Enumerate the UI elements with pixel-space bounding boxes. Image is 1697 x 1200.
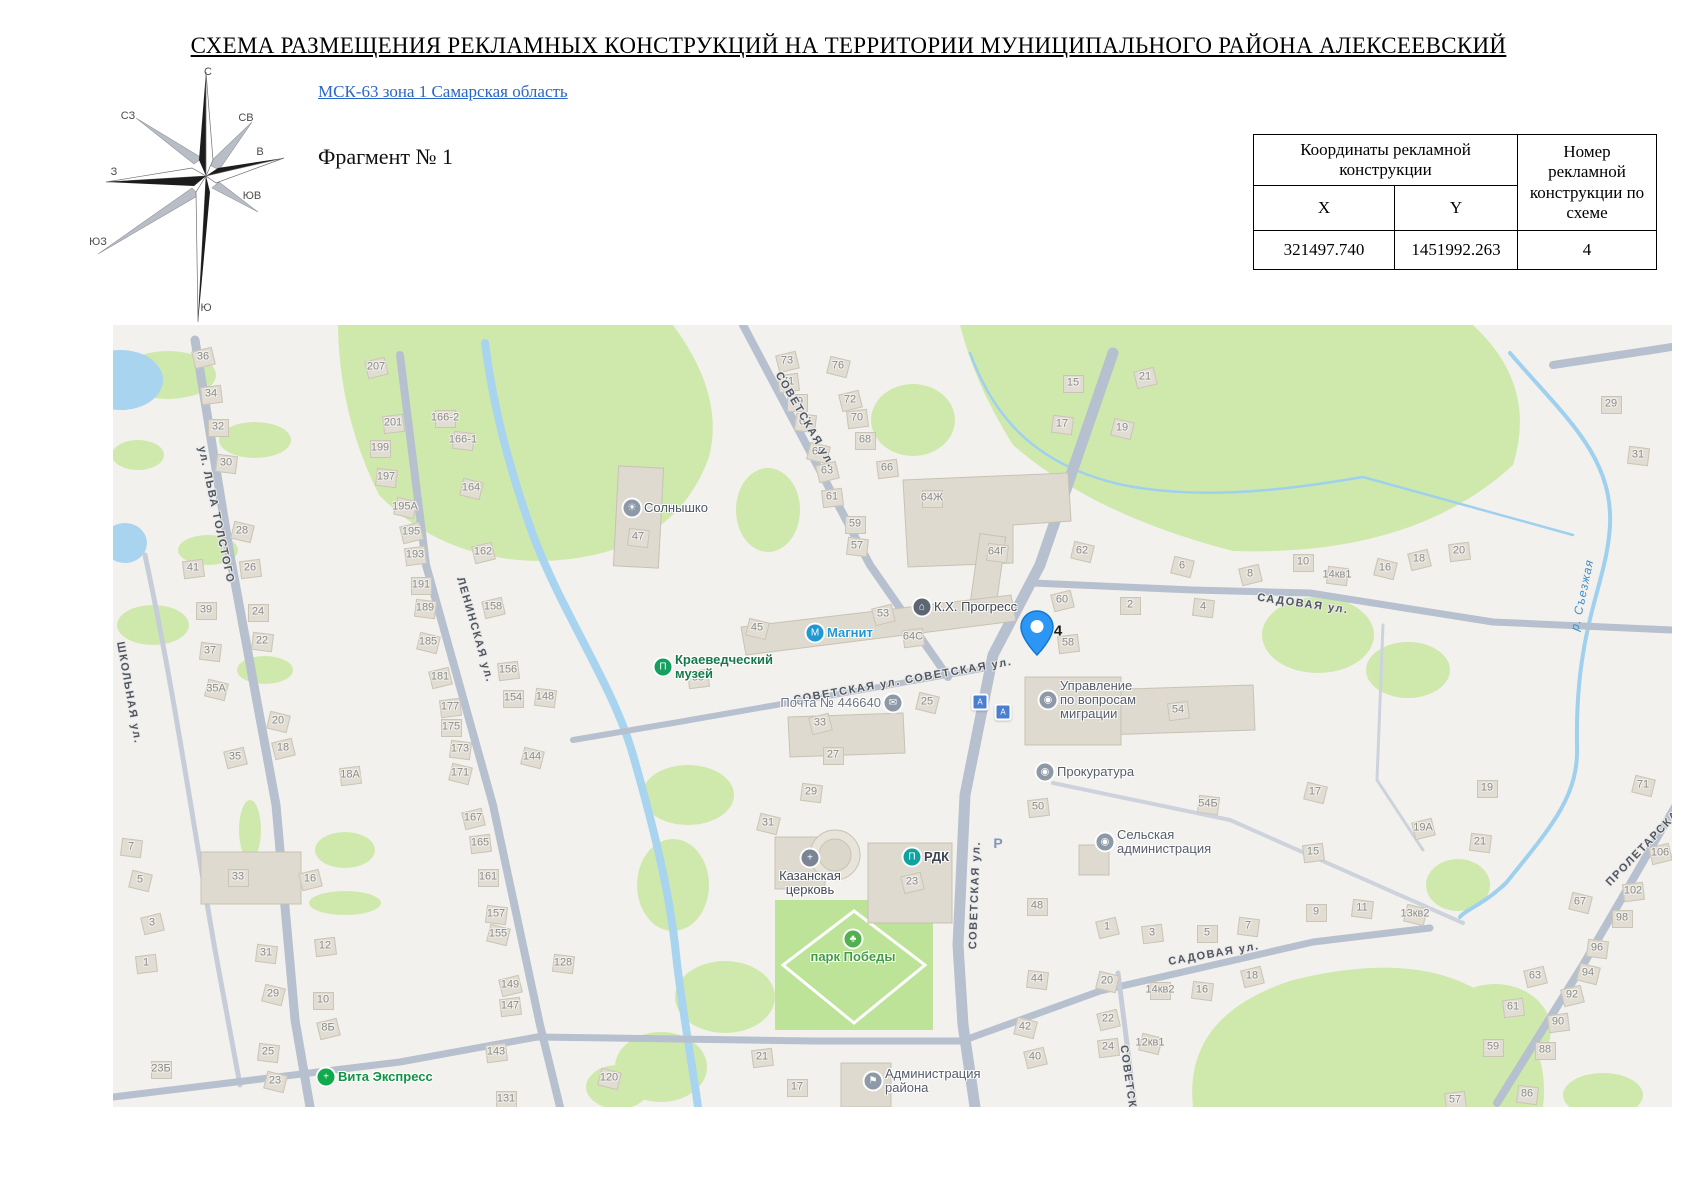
house-number-label: 10 [1297, 557, 1309, 568]
y-header-cell: Y [1395, 186, 1518, 231]
house-number-label: 199 [371, 443, 389, 454]
house-number-label: 16 [1379, 563, 1391, 574]
sun-icon: ☀ [624, 500, 641, 517]
house-number-label: 1 [143, 958, 149, 969]
house-number-label: 171 [451, 768, 469, 779]
placemark-number: 4 [1054, 623, 1062, 640]
house-number-label: 19А [1413, 823, 1433, 834]
house-number-label: 48 [1031, 901, 1043, 912]
house-number-label: 154 [504, 693, 522, 704]
house-number-label: 175 [442, 722, 460, 733]
house-number-label: 21 [1139, 372, 1151, 383]
house-number-label: 3 [1149, 928, 1155, 939]
house-number-label: 37 [204, 646, 216, 657]
house-number-label: 61 [1507, 1002, 1519, 1013]
compass-label-se: ЮВ [243, 190, 261, 202]
house-number-label: 98 [1616, 913, 1628, 924]
house-number-label: 1 [1104, 922, 1110, 933]
house-number-label: 45 [751, 623, 763, 634]
house-number-label: 131 [497, 1094, 515, 1105]
poi-label[interactable]: Прокуратура [1057, 765, 1134, 779]
house-number-label: 76 [832, 361, 844, 372]
house-number-label: 34 [205, 389, 217, 400]
house-number-label: 19 [1481, 783, 1493, 794]
house-number-label: 30 [220, 458, 232, 469]
poi-label[interactable]: РДК [924, 850, 949, 864]
house-number-label: 9 [1313, 907, 1319, 918]
number-value-cell: 4 [1518, 231, 1657, 270]
culture-icon: П [904, 849, 921, 866]
house-number-label: 39 [200, 605, 212, 616]
house-number-label: 92 [1566, 990, 1578, 1001]
poi-label[interactable]: К.Х. Прогресс [934, 600, 1017, 614]
coords-header-cell: Координаты рекламной конструкции [1254, 135, 1518, 186]
house-number-label: 42 [1019, 1022, 1031, 1033]
house-number-label: 35А [206, 684, 226, 695]
house-number-label: 20 [1453, 546, 1465, 557]
map-graphics [113, 325, 1672, 1107]
house-number-label: 6 [1179, 561, 1185, 572]
house-number-label: 17 [791, 1082, 803, 1093]
house-number-label: 16 [1196, 985, 1208, 996]
house-number-label: 166-1 [449, 435, 477, 446]
placemark-icon[interactable] [1020, 610, 1054, 661]
church-cross-icon: + [802, 850, 819, 867]
house-number-label: 66 [881, 463, 893, 474]
poi-label[interactable]: Сельская администрация [1117, 828, 1211, 856]
house-number-label: 19 [1116, 423, 1128, 434]
house-number-label: 33 [814, 718, 826, 729]
house-number-label: 64Ж [921, 493, 943, 504]
poi-label[interactable]: Магнит [827, 626, 873, 640]
compass-label-ne: СВ [238, 112, 253, 124]
number-header-cell: Номер рекламной конструкции по схеме [1518, 135, 1657, 231]
pharmacy-cross-icon: + [318, 1069, 335, 1086]
poi-label[interactable]: Администрация района [885, 1067, 981, 1095]
house-number-label: 50 [1032, 802, 1044, 813]
house-number-label: 167 [464, 813, 482, 824]
house-number-label: 12 [319, 941, 331, 952]
house-number-label: 20 [1101, 976, 1113, 987]
house-number-label: 197 [377, 472, 395, 483]
poi-label[interactable]: Вита Экспресс [338, 1070, 433, 1084]
house-number-label: 18 [1246, 971, 1258, 982]
government-icon: ◉ [1097, 834, 1114, 851]
house-number-label: 173 [451, 744, 469, 755]
house-number-label: 7 [1245, 921, 1251, 932]
house-number-label: 59 [849, 519, 861, 530]
house-number-label: 70 [851, 413, 863, 424]
house-number-label: 13кв2 [1400, 909, 1429, 920]
compass-label-e: В [256, 146, 263, 158]
house-number-label: 14кв1 [1322, 570, 1351, 581]
poi-label[interactable]: Почта № 446640 [780, 696, 881, 710]
bus-stop-icon: А [995, 704, 1012, 721]
poi-label[interactable]: парк Победы [810, 950, 895, 964]
house-number-label: 26 [244, 563, 256, 574]
government-icon: ◉ [1037, 764, 1054, 781]
house-number-label: 90 [1552, 1017, 1564, 1028]
compass-label-s: Ю [200, 302, 211, 314]
house-number-label: 22 [1102, 1014, 1114, 1025]
house-number-label: 57 [851, 541, 863, 552]
house-number-label: 193 [406, 550, 424, 561]
house-number-label: 47 [632, 532, 644, 543]
fragment-label: Фрагмент № 1 [318, 144, 453, 170]
house-number-label: 17 [1309, 787, 1321, 798]
page-title: СХЕМА РАЗМЕЩЕНИЯ РЕКЛАМНЫХ КОНСТРУКЦИЙ Н… [0, 33, 1697, 59]
house-number-label: 195 [402, 527, 420, 538]
house-number-label: 54Б [1198, 799, 1217, 810]
house-number-label: 35 [229, 752, 241, 763]
house-number-label: 8Б [321, 1023, 334, 1034]
house-number-label: 60 [1056, 595, 1068, 606]
house-number-label: 15 [1067, 378, 1079, 389]
house-number-label: 73 [781, 356, 793, 367]
house-number-label: 181 [431, 672, 449, 683]
house-number-label: 24 [1102, 1042, 1114, 1053]
house-number-label: 157 [487, 909, 505, 920]
house-number-label: 102 [1624, 886, 1642, 897]
flag-icon: ⚑ [865, 1073, 882, 1090]
house-number-label: 189 [416, 603, 434, 614]
map: 3634323028207201199197195А195193166-2166… [113, 325, 1672, 1107]
house-number-label: 164 [462, 483, 480, 494]
house-number-label: 40 [1029, 1052, 1041, 1063]
house-number-label: 12кв1 [1135, 1038, 1164, 1049]
house-number-label: 53 [877, 609, 889, 620]
poi-label[interactable]: Краеведческий музей [675, 653, 773, 681]
house-number-label: 63 [1529, 971, 1541, 982]
parking-icon: Р [993, 835, 1002, 851]
house-number-label: 158 [484, 602, 502, 613]
house-number-label: 94 [1582, 968, 1594, 979]
house-number-label: 7 [128, 842, 134, 853]
poi-label[interactable]: Солнышко [644, 501, 708, 515]
bus-stop-icon: А [972, 694, 989, 711]
house-number-label: 25 [921, 697, 933, 708]
government-icon: ◉ [1040, 692, 1057, 709]
house-number-label: 165 [471, 838, 489, 849]
compass-star-icon [88, 64, 303, 332]
house-number-label: 29 [267, 989, 279, 1000]
house-number-label: 143 [487, 1047, 505, 1058]
house-number-label: 31 [260, 948, 272, 959]
house-number-label: 72 [844, 395, 856, 406]
house-number-label: 25 [262, 1047, 274, 1058]
house-number-label: 2 [1127, 600, 1133, 611]
house-number-label: 14кв2 [1145, 985, 1174, 996]
house-number-label: 195А [392, 502, 418, 513]
compass-label-nw: СЗ [121, 110, 135, 122]
msk-zone-link[interactable]: МСК-63 зона 1 Самарская область [318, 82, 568, 102]
house-number-label: 41 [187, 563, 199, 574]
house-number-label: 201 [384, 418, 402, 429]
house-number-label: 162 [474, 547, 492, 558]
house-number-label: 33 [232, 872, 244, 883]
house-number-label: 3 [149, 918, 155, 929]
house-number-label: 166-2 [431, 413, 459, 424]
house-number-label: 32 [212, 422, 224, 433]
coordinates-table: Координаты рекламной конструкции Номер р… [1253, 134, 1657, 270]
house-number-label: 59 [1487, 1042, 1499, 1053]
house-number-label: 68 [859, 435, 871, 446]
house-number-label: 156 [499, 665, 517, 676]
house-number-label: 27 [827, 750, 839, 761]
factory-icon: ⌂ [914, 599, 931, 616]
house-number-label: 88 [1539, 1045, 1551, 1056]
house-number-label: 23Б [151, 1064, 170, 1075]
document-page: СХЕМА РАЗМЕЩЕНИЯ РЕКЛАМНЫХ КОНСТРУКЦИЙ Н… [0, 0, 1697, 1200]
house-number-label: 86 [1521, 1089, 1533, 1100]
poi-label[interactable]: Казанская церковь [779, 869, 841, 897]
house-number-label: 18А [340, 770, 360, 781]
tree-icon: ♣ [845, 931, 862, 948]
x-header-cell: X [1254, 186, 1395, 231]
y-value-cell: 1451992.263 [1395, 231, 1518, 270]
envelope-icon: ✉ [885, 695, 902, 712]
house-number-label: 44 [1031, 974, 1043, 985]
house-number-label: 21 [1474, 837, 1486, 848]
house-number-label: 64Г [988, 547, 1006, 558]
house-number-label: 148 [536, 692, 554, 703]
house-number-label: 22 [256, 636, 268, 647]
house-number-label: 36 [197, 352, 209, 363]
compass-label-sw: ЮЗ [89, 236, 107, 248]
house-number-label: 106 [1651, 848, 1669, 859]
compass-label-n: С [204, 66, 212, 78]
compass-rose: С СВ В ЮВ Ю ЮЗ З СЗ [88, 64, 303, 332]
house-number-label: 4 [1200, 602, 1206, 613]
museum-icon: П [655, 659, 672, 676]
house-number-label: 23 [269, 1076, 281, 1087]
basket-icon: М [807, 625, 824, 642]
house-number-label: 54 [1172, 705, 1184, 716]
house-number-label: 10 [317, 995, 329, 1006]
house-number-label: 5 [137, 875, 143, 886]
house-number-label: 18 [277, 743, 289, 754]
house-number-label: 20 [272, 716, 284, 727]
house-number-label: 144 [523, 752, 541, 763]
house-number-label: 58 [1062, 638, 1074, 649]
house-number-label: 61 [826, 492, 838, 503]
house-number-label: 96 [1591, 943, 1603, 954]
house-number-label: 29 [805, 787, 817, 798]
house-number-label: 71 [1637, 780, 1649, 791]
house-number-label: 31 [1632, 450, 1644, 461]
house-number-label: 29 [1605, 399, 1617, 410]
house-number-label: 120 [600, 1073, 618, 1084]
house-number-label: 149 [501, 980, 519, 991]
house-number-label: 17 [1056, 419, 1068, 430]
house-number-label: 28 [236, 526, 248, 537]
house-number-label: 21 [756, 1052, 768, 1063]
house-number-label: 161 [479, 872, 497, 883]
house-number-label: 191 [412, 580, 430, 591]
house-number-label: 67 [1574, 897, 1586, 908]
house-number-label: 23 [906, 877, 918, 888]
house-number-label: 24 [252, 607, 264, 618]
house-number-label: 64С [903, 632, 923, 643]
house-number-label: 31 [762, 818, 774, 829]
house-number-label: 207 [367, 362, 385, 373]
x-value-cell: 321497.740 [1254, 231, 1395, 270]
house-number-label: 11 [1356, 903, 1367, 914]
house-number-label: 62 [1076, 546, 1088, 557]
house-number-label: 177 [441, 702, 459, 713]
house-number-label: 155 [489, 929, 507, 940]
house-number-label: 57 [1449, 1095, 1461, 1106]
house-number-label: 147 [501, 1001, 519, 1012]
house-number-label: 8 [1247, 569, 1253, 580]
poi-label[interactable]: Управление по вопросам миграции [1060, 679, 1136, 721]
compass-label-w: З [111, 166, 118, 178]
house-number-label: 5 [1204, 928, 1210, 939]
house-number-label: 15 [1307, 847, 1319, 858]
house-number-label: 185 [419, 637, 437, 648]
house-number-label: 16 [304, 874, 316, 885]
house-number-label: 18 [1413, 554, 1425, 565]
house-number-label: 128 [554, 958, 572, 969]
